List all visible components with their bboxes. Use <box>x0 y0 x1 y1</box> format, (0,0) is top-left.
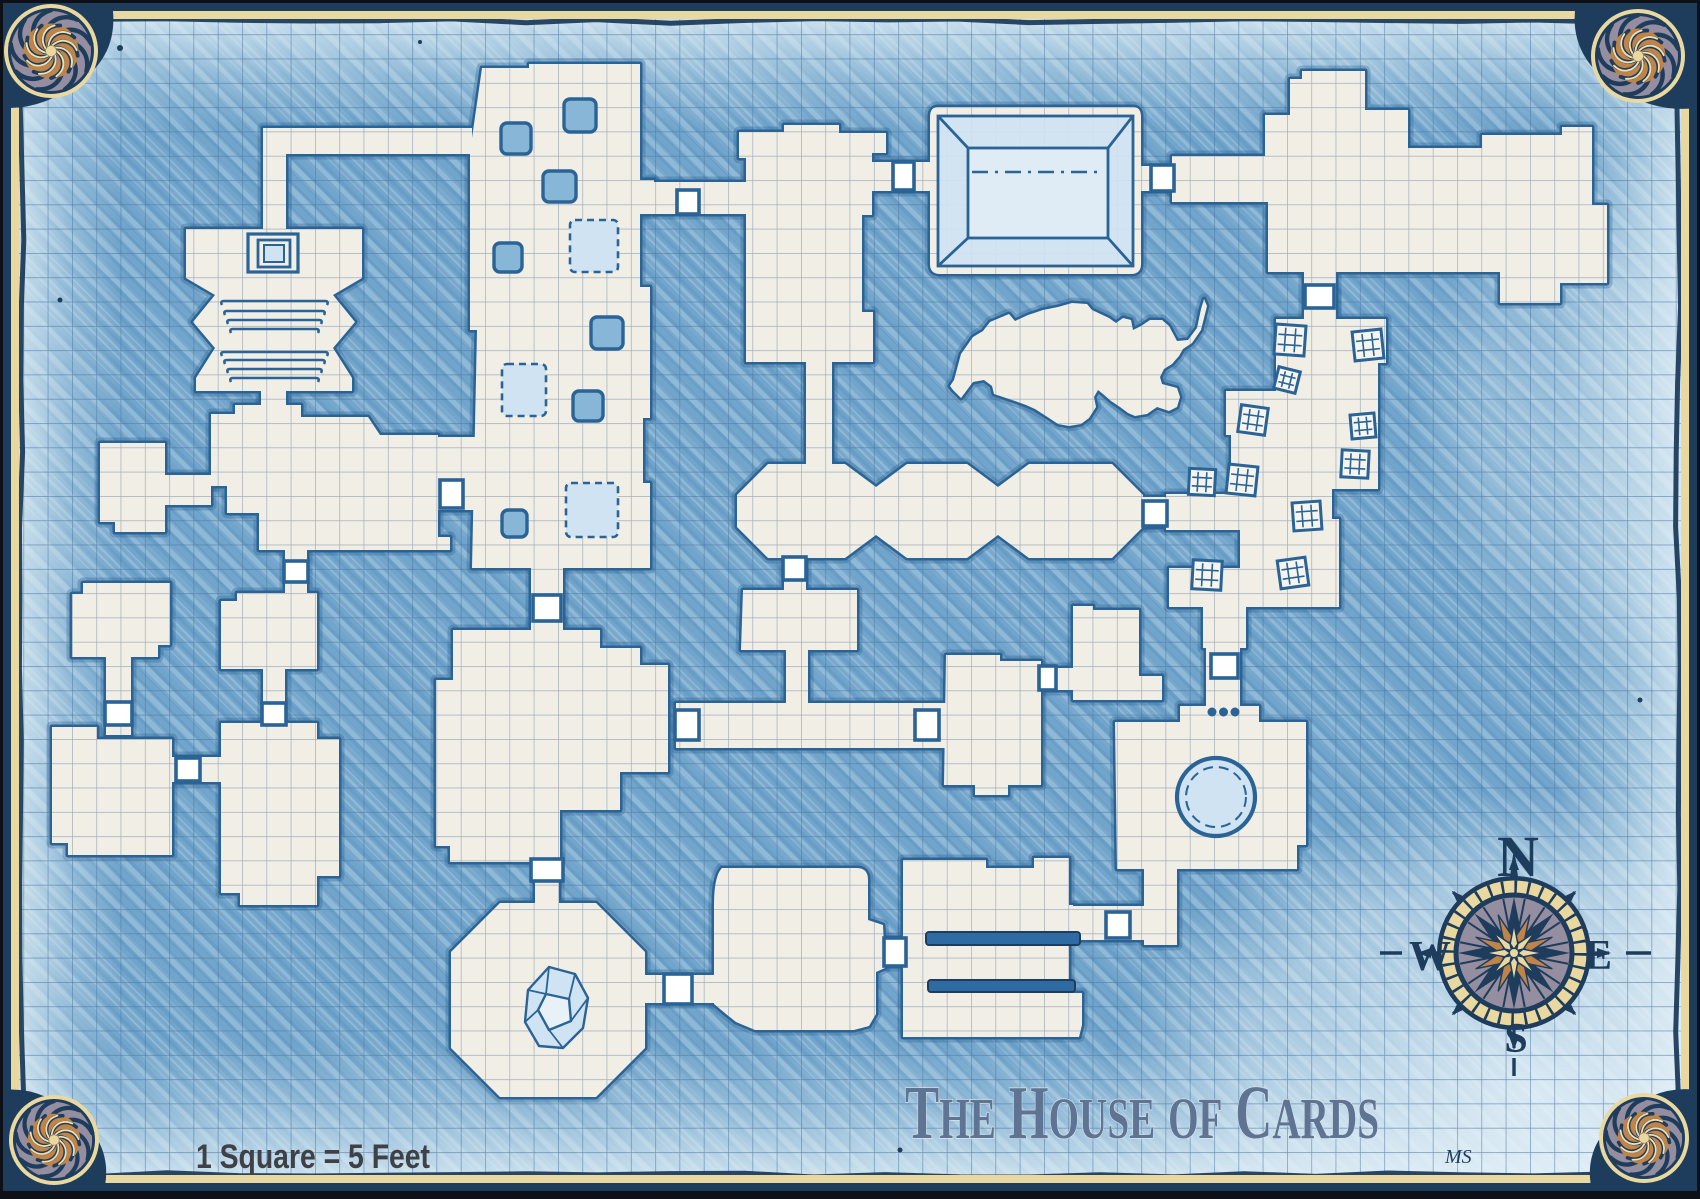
svg-text:S: S <box>1504 1016 1527 1062</box>
svg-text:E: E <box>1584 933 1612 979</box>
svg-text:W: W <box>1409 934 1451 980</box>
svg-text:N: N <box>1497 824 1539 889</box>
svg-text:MS: MS <box>1444 1146 1472 1168</box>
svg-text:1 Square = 5 Feet: 1 Square = 5 Feet <box>196 1138 430 1176</box>
